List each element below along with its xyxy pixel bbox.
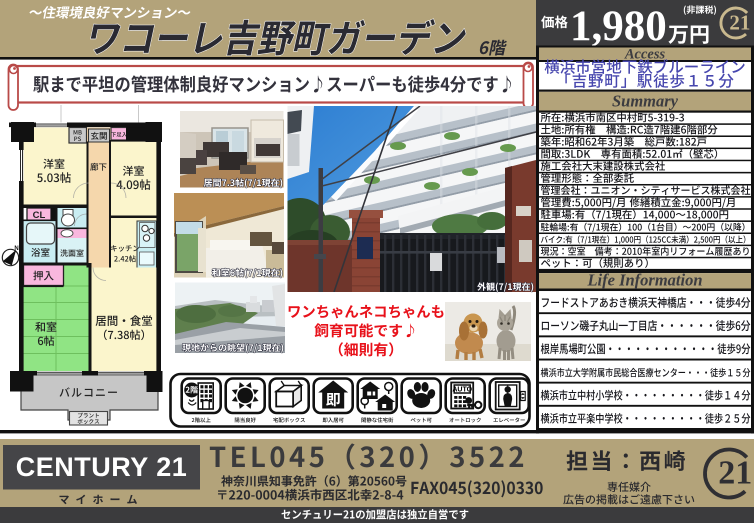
svg-text:Access: Access [624, 46, 666, 62]
svg-text:AUTO: AUTO [452, 387, 472, 394]
svg-text:N: N [14, 246, 18, 252]
svg-text:CENTURY 21: CENTURY 21 [16, 452, 188, 482]
svg-text:Life Information: Life Information [586, 270, 702, 289]
svg-text:21: 21 [718, 455, 752, 492]
svg-text:21: 21 [729, 10, 750, 34]
svg-text:CL: CL [33, 210, 46, 221]
svg-text:Summary: Summary [612, 92, 679, 111]
svg-text:1,980: 1,980 [570, 3, 667, 50]
